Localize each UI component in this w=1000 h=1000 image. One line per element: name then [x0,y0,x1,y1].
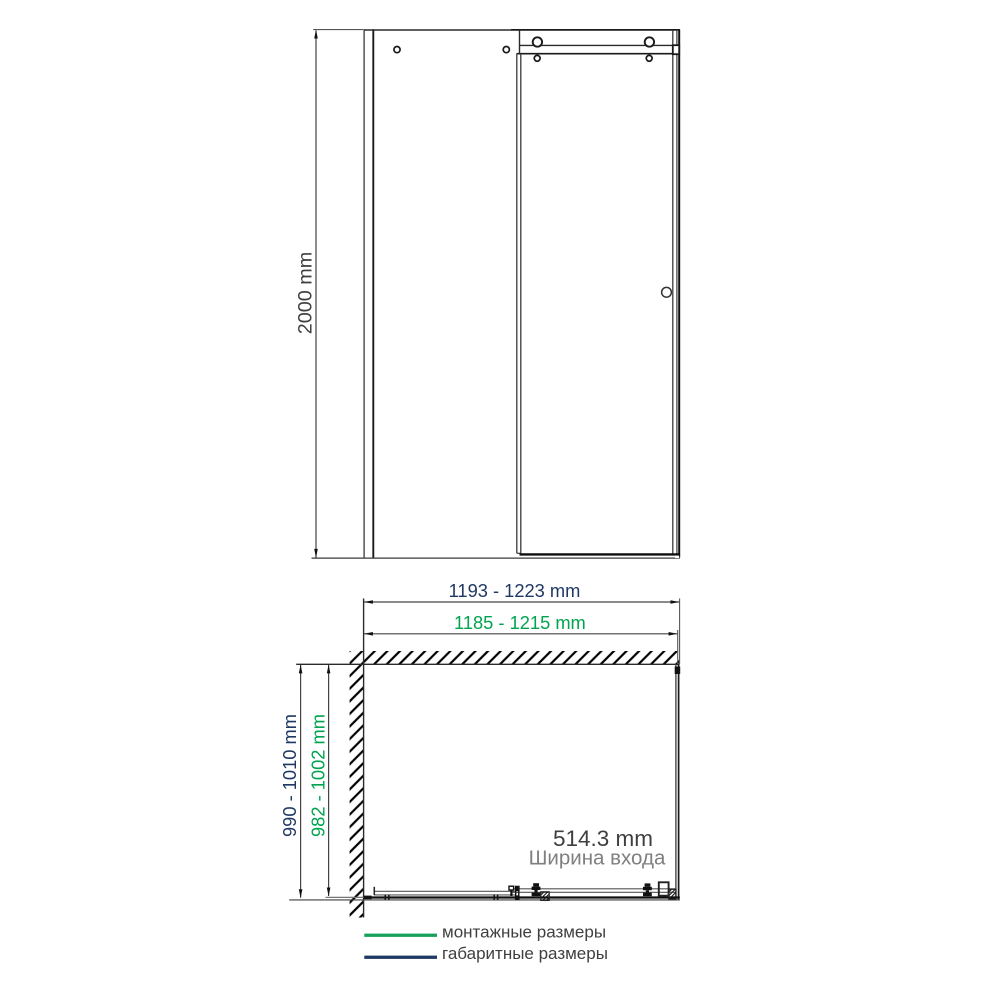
svg-text:монтажные размеры: монтажные размеры [442,922,606,941]
svg-text:990 - 1010 mm: 990 - 1010 mm [279,714,300,837]
svg-text:1193 - 1223 mm: 1193 - 1223 mm [449,580,581,601]
svg-text:Ширина входа: Ширина входа [529,847,666,870]
svg-text:1185 - 1215 mm: 1185 - 1215 mm [454,612,586,633]
svg-text:2000 mm: 2000 mm [294,252,316,334]
svg-text:982 - 1002 mm: 982 - 1002 mm [308,714,329,837]
svg-text:габаритные размеры: габаритные размеры [442,944,608,963]
